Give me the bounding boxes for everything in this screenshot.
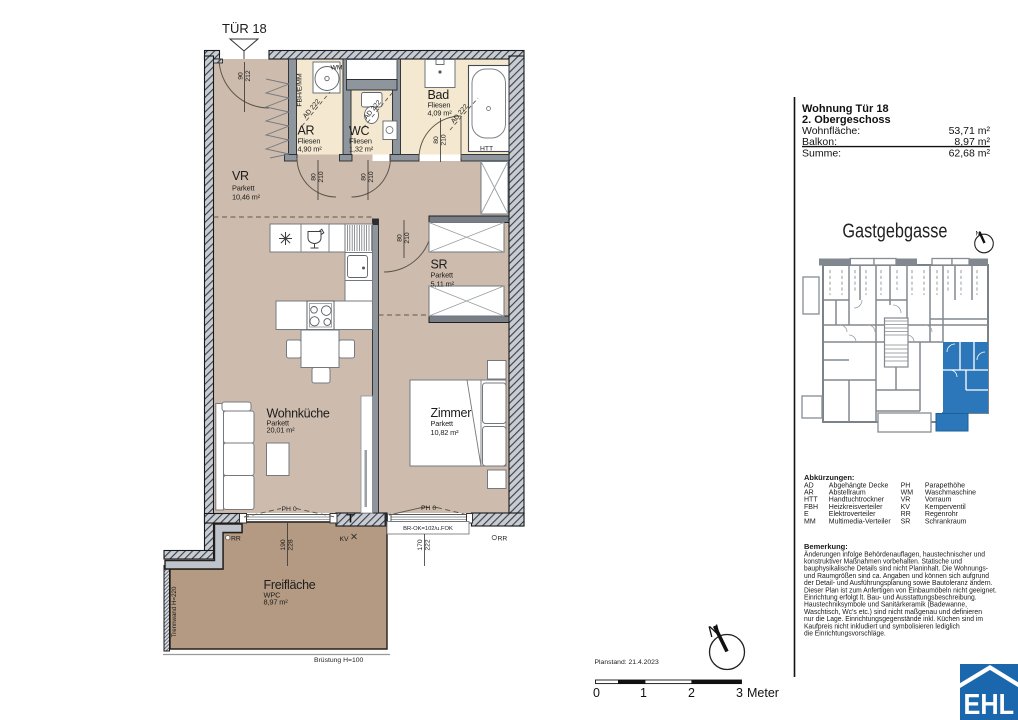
svg-text:212: 212	[245, 70, 252, 82]
svg-text:RR: RR	[498, 536, 508, 543]
svg-text:EHL: EHL	[964, 689, 1015, 720]
svg-text:80: 80	[311, 173, 318, 181]
svg-text:210: 210	[404, 232, 411, 244]
svg-text:VR: VR	[232, 169, 249, 183]
svg-text:HTT: HTT	[480, 146, 493, 153]
svg-text:Handtuchtrockner: Handtuchtrockner	[829, 497, 885, 504]
svg-text:KV: KV	[340, 536, 350, 543]
svg-text:0: 0	[593, 686, 600, 700]
svg-text:N: N	[707, 622, 722, 641]
svg-text:PH: PH	[901, 482, 911, 489]
svg-text:FBH/E/MM: FBH/E/MM	[297, 73, 304, 107]
svg-text:Heizkreisverteiler: Heizkreisverteiler	[829, 504, 883, 511]
svg-text:4,09 m²: 4,09 m²	[428, 109, 453, 118]
svg-text:Haustechniksymbole und Sanitär: Haustechniksymbole und Sanitärkeramik (B…	[804, 602, 967, 609]
svg-text:RR: RR	[231, 536, 241, 543]
svg-text:228: 228	[288, 539, 295, 551]
svg-text:und Raumgrößen sind ca. Angabe: und Raumgrößen sind ca. Angaben und könn…	[804, 573, 989, 580]
svg-text:Parkett: Parkett	[431, 419, 453, 428]
svg-text:5,11 m²: 5,11 m²	[431, 280, 455, 289]
svg-text:Einrichtung erfolgt lt. Bau- u: Einrichtung erfolgt lt. Bau- und Ausstat…	[804, 595, 977, 602]
svg-text:der Detail- und Ausführungspla: der Detail- und Ausführungsplanung sowie…	[804, 580, 993, 587]
svg-text:Elektroverteiler: Elektroverteiler	[829, 511, 876, 518]
svg-text:Waschtisch, Wc's etc.) sind ni: Waschtisch, Wc's etc.) sind nicht maßgen…	[804, 609, 982, 616]
svg-text:SR: SR	[431, 258, 448, 272]
svg-text:80: 80	[397, 234, 404, 242]
svg-text:170: 170	[417, 539, 424, 551]
svg-text:nur die Lage. Einrichtungsgege: nur die Lage. Einrichtungsgegenstände in…	[804, 616, 983, 623]
svg-text:die Einrichtungsvorschläge.: die Einrichtungsvorschläge.	[804, 631, 886, 638]
svg-text:Parkett: Parkett	[232, 184, 254, 193]
svg-text:Regenrohr: Regenrohr	[925, 511, 959, 518]
svg-text:Trennwand H=220: Trennwand H=220	[171, 586, 178, 637]
svg-text:Abkürzungen:: Abkürzungen:	[804, 473, 854, 482]
svg-text:E: E	[804, 511, 809, 518]
svg-text:Zimmer: Zimmer	[431, 406, 472, 420]
svg-text:2: 2	[688, 686, 695, 700]
svg-text:Parkett: Parkett	[431, 271, 453, 280]
svg-text:konstruktiver Maßnahmen vorbeh: konstruktiver Maßnahmen vorbehalten. Sta…	[804, 559, 962, 566]
svg-text:3: 3	[736, 686, 743, 700]
svg-text:90: 90	[238, 72, 245, 80]
svg-text:N: N	[976, 231, 981, 238]
svg-text:AR: AR	[804, 490, 814, 497]
svg-text:10,46 m²: 10,46 m²	[232, 193, 261, 202]
svg-text:TÜR 18: TÜR 18	[222, 21, 267, 36]
svg-text:Abgehängte Decke: Abgehängte Decke	[829, 482, 889, 489]
svg-text:Vorraum: Vorraum	[925, 497, 952, 504]
svg-text:Planstand: 21.4.2023: Planstand: 21.4.2023	[595, 659, 659, 666]
svg-text:4,90 m²: 4,90 m²	[298, 145, 323, 154]
svg-text:FBH: FBH	[804, 504, 818, 511]
svg-text:PH 0: PH 0	[421, 505, 436, 512]
svg-text:1,32 m²: 1,32 m²	[349, 145, 374, 154]
svg-text:PH 0: PH 0	[282, 506, 297, 513]
svg-text:8,97 m²: 8,97 m²	[264, 598, 289, 607]
svg-text:SR: SR	[901, 518, 911, 525]
svg-text:AD: AD	[804, 482, 814, 489]
svg-text:62,68 m²: 62,68 m²	[949, 147, 991, 159]
svg-text:Abstellraum: Abstellraum	[829, 490, 866, 497]
svg-text:Multimedia-Verteiler: Multimedia-Verteiler	[829, 518, 892, 525]
svg-text:HTT: HTT	[804, 497, 818, 504]
svg-text:BR-OK=102/u.FOK: BR-OK=102/u.FOK	[403, 526, 453, 532]
svg-text:210: 210	[318, 171, 325, 183]
svg-text:Bemerkung:: Bemerkung:	[804, 542, 848, 551]
svg-text:RR: RR	[901, 511, 911, 518]
svg-text:Waschmaschine: Waschmaschine	[925, 490, 976, 497]
svg-text:KV: KV	[901, 504, 911, 511]
svg-text:1: 1	[640, 686, 647, 700]
svg-text:Schrankraum: Schrankraum	[925, 518, 967, 525]
svg-text:Änderungen infolge Behördenauf: Änderungen infolge Behördenauflagen, hau…	[804, 550, 985, 558]
svg-text:WM: WM	[331, 65, 343, 72]
svg-text:AR: AR	[298, 124, 315, 138]
svg-text:bauphysikalische Details sind: bauphysikalische Details sind nicht Plan…	[804, 566, 989, 573]
svg-text:Kemperventil: Kemperventil	[925, 504, 966, 511]
svg-text:20,01 m²: 20,01 m²	[267, 426, 296, 435]
svg-text:10,82 m²: 10,82 m²	[431, 428, 460, 437]
svg-text:Gastgebgasse: Gastgebgasse	[842, 220, 947, 242]
svg-text:Kaufpreis nicht inkludiert und: Kaufpreis nicht inkludiert und symbolisi…	[804, 623, 960, 630]
svg-text:210: 210	[441, 134, 448, 146]
svg-text:Wohnung Tür 18: Wohnung Tür 18	[802, 103, 889, 115]
svg-text:80: 80	[433, 136, 440, 144]
svg-text:210: 210	[368, 171, 375, 183]
svg-text:Brüstung H=100: Brüstung H=100	[314, 657, 364, 664]
svg-text:222: 222	[425, 539, 432, 551]
svg-text:80: 80	[361, 173, 368, 181]
svg-text:190: 190	[280, 539, 287, 551]
svg-text:Dieser Plan ist zum Anfertigen: Dieser Plan ist zum Anfertigen von Einba…	[804, 587, 997, 594]
svg-text:WM: WM	[901, 490, 914, 497]
svg-text:Summe:: Summe:	[802, 147, 841, 159]
svg-text:Parapethöhe: Parapethöhe	[925, 482, 965, 489]
svg-text:Meter: Meter	[747, 686, 779, 700]
svg-text:MM: MM	[804, 518, 816, 525]
svg-text:VR: VR	[901, 497, 911, 504]
